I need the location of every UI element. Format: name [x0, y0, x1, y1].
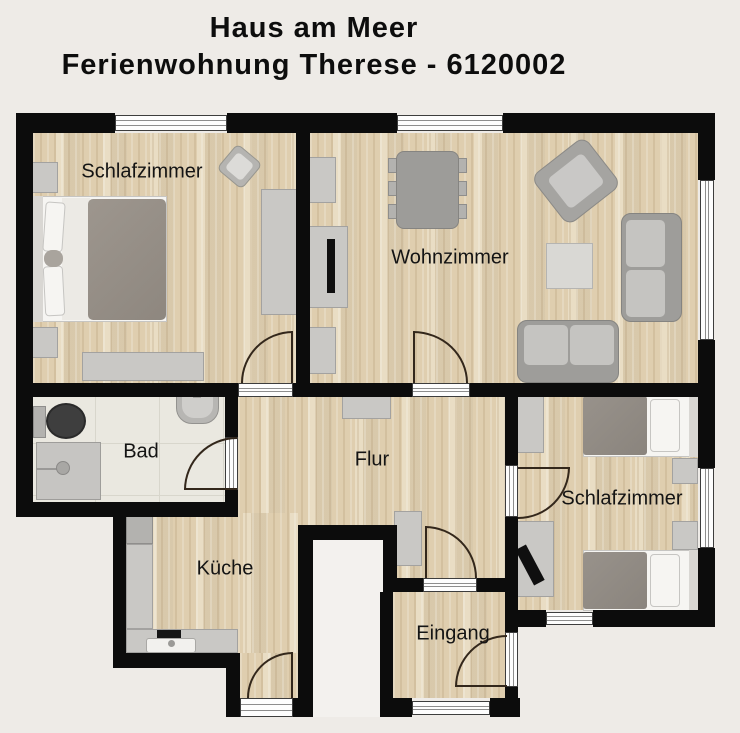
room-label-living-room: Wohnzimmer: [391, 247, 508, 270]
small-pillow: [44, 250, 63, 267]
dining-chair: [458, 204, 467, 219]
door-leaf: [413, 331, 415, 383]
wardrobe: [261, 189, 297, 315]
bed-headboard: [33, 196, 43, 322]
room-label-entrance: Eingang: [416, 623, 489, 646]
room-label-bedroom-right: Schlafzimmer: [561, 488, 682, 511]
window: [700, 180, 714, 340]
dining-table: [396, 151, 459, 229]
wall: [505, 610, 546, 627]
wall: [380, 698, 412, 717]
nightstand: [32, 327, 58, 358]
wall: [227, 113, 397, 133]
wall: [505, 397, 518, 465]
washbasin-bowl: [182, 396, 213, 418]
wall: [505, 517, 518, 610]
bed-headboard: [689, 550, 698, 611]
dining-chair: [458, 181, 467, 196]
sink-faucet: [168, 640, 175, 647]
pillow: [650, 554, 680, 607]
coffee-table: [546, 243, 593, 289]
wall: [16, 133, 33, 517]
bed-blanket: [583, 552, 647, 609]
dining-chair: [458, 158, 467, 173]
title-line1: Haus am Meer: [0, 10, 628, 47]
room-label-hallway: Flur: [355, 449, 389, 472]
armchair-seat: [547, 152, 605, 209]
pillow: [43, 266, 66, 317]
room-label-bedroom-left: Schlafzimmer: [81, 161, 202, 184]
door-sill: [423, 578, 477, 592]
dresser: [82, 352, 204, 381]
wall: [293, 383, 412, 397]
wall: [698, 397, 715, 468]
window: [546, 612, 593, 625]
title-line2: Ferienwohnung Therese - 6120002: [0, 47, 628, 84]
nightstand: [32, 162, 58, 193]
shelf: [308, 157, 336, 203]
bed-blanket: [583, 396, 647, 455]
window: [412, 701, 490, 715]
wall: [383, 578, 423, 592]
cooktop: [157, 630, 181, 638]
sofa-cushion: [626, 220, 665, 267]
room-label-bathroom: Bad: [123, 441, 159, 464]
wall: [503, 113, 715, 133]
wall: [113, 653, 228, 668]
bed-headboard: [689, 394, 698, 457]
door-leaf: [291, 652, 293, 698]
toilet-tank: [33, 406, 46, 438]
nightstand: [672, 521, 698, 550]
floor-plan: Haus am Meer Ferienwohnung Therese - 612…: [0, 0, 740, 733]
shower-drain: [56, 461, 70, 475]
wall: [505, 687, 518, 717]
door-leaf: [425, 526, 427, 578]
wall: [698, 133, 715, 180]
door-sill: [412, 383, 470, 397]
building-void: [313, 540, 383, 717]
sofa-cushion: [524, 325, 568, 365]
sofa: [517, 320, 619, 383]
window: [700, 468, 714, 548]
pillow: [42, 201, 65, 252]
toilet: [46, 403, 86, 439]
door-sill: [505, 465, 518, 517]
pillow: [650, 399, 680, 452]
door-leaf: [518, 467, 570, 469]
wall: [225, 397, 238, 437]
nightstand: [672, 458, 698, 484]
fridge: [126, 514, 153, 544]
bed-sheet: [62, 198, 90, 320]
window: [115, 115, 227, 131]
bed-blanket: [88, 199, 166, 320]
window: [397, 115, 503, 131]
wall: [296, 133, 310, 383]
door-sill: [238, 383, 293, 397]
door-leaf: [455, 685, 507, 687]
room-label-kitchen: Küche: [197, 558, 254, 581]
wall: [470, 383, 715, 397]
wall: [298, 525, 313, 717]
wall: [16, 502, 238, 517]
kitchen-counter: [126, 544, 153, 629]
tv: [327, 239, 335, 293]
chair-seat: [225, 152, 255, 182]
door-sill: [240, 698, 293, 717]
door-leaf: [291, 331, 293, 383]
sofa: [621, 213, 682, 322]
door-leaf: [184, 488, 237, 490]
page-title: Haus am Meer Ferienwohnung Therese - 612…: [0, 10, 628, 84]
wall: [16, 113, 115, 133]
wardrobe: [517, 393, 544, 453]
sofa-cushion: [570, 325, 614, 365]
wall: [593, 610, 715, 627]
sofa-cushion: [626, 270, 665, 317]
wall: [226, 653, 240, 717]
wall: [113, 513, 126, 668]
shelf: [308, 327, 336, 374]
sideboard: [394, 511, 422, 566]
wall: [16, 383, 238, 397]
